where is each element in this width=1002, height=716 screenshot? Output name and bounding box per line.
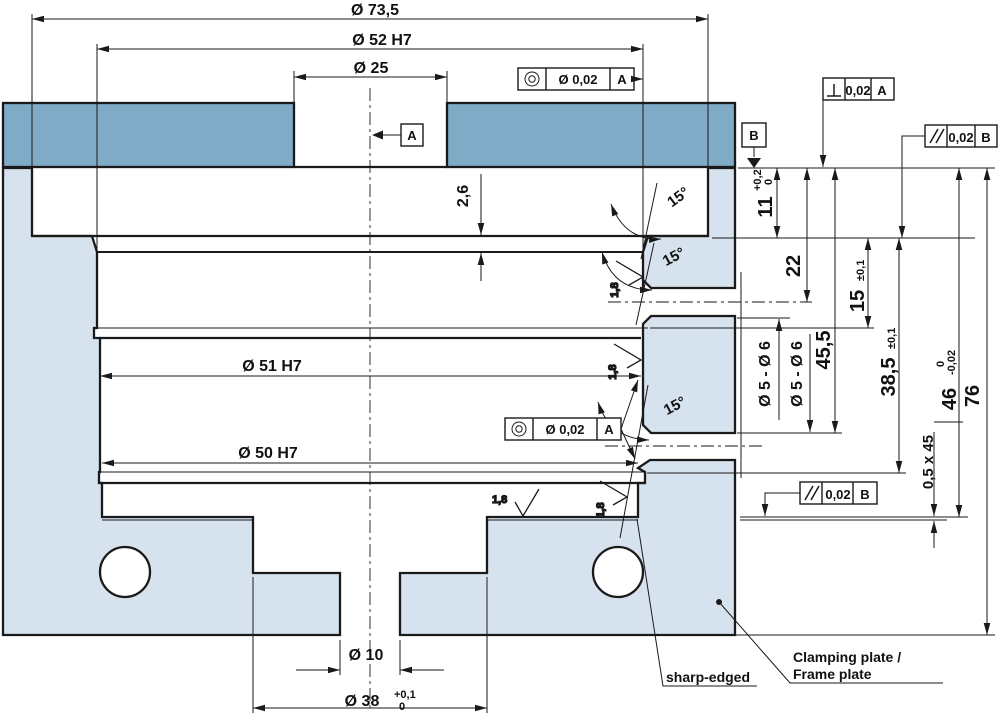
- dim-38-5: 38,5 ±0,1: [878, 328, 900, 397]
- fcf-conc-mid-tol: Ø 0,02: [545, 422, 584, 437]
- fcf-conc-mid-datum: A: [604, 422, 614, 437]
- datum-b-label: B: [749, 128, 758, 143]
- section-view: 15° 15° 15° 1,8 1,8 1,8 1,8 Ø 0,02 A 0,0…: [0, 0, 1002, 716]
- fcf-par-bottom-datum: B: [860, 487, 869, 502]
- fcf-conc-top-datum: A: [617, 72, 627, 87]
- roughness-1: 1,8: [609, 282, 621, 297]
- dim-52: Ø 52 H7: [352, 32, 412, 49]
- svg-text:46: 46: [939, 388, 961, 410]
- flange-hole-left: [100, 547, 150, 597]
- roughness-symbols: 1,8 1,8 1,8 1,8: [492, 261, 643, 518]
- side-hole-label-1: Ø 5 - Ø 6: [757, 341, 774, 407]
- svg-text:38,5: 38,5: [878, 358, 900, 397]
- svg-text:11: 11: [755, 196, 777, 217]
- svg-text:0: 0: [763, 179, 775, 185]
- svg-text:45,5: 45,5: [813, 331, 835, 370]
- svg-text:2,6: 2,6: [455, 185, 472, 207]
- datum-a-flag: A: [372, 124, 423, 146]
- svg-text:-0,02: -0,02: [946, 350, 958, 375]
- fcf-parallelism-top: 0,02 B: [902, 125, 997, 238]
- fcf-perpendicularity: 0,02 A: [823, 78, 894, 167]
- svg-text:15: 15: [847, 290, 869, 312]
- body-lower-right: [400, 460, 735, 635]
- fcf-concentricity-top: Ø 0,02 A: [518, 68, 643, 90]
- fcf-par-top-tol: 0,02: [948, 130, 973, 145]
- dim-45-5: 45,5: [813, 331, 835, 370]
- roughness-2: 1,8: [607, 364, 619, 379]
- datum-b-flag: B: [742, 123, 766, 168]
- dim-46: 46 0 -0,02: [935, 350, 961, 410]
- datum-a-arrow: [372, 131, 383, 140]
- roughness-4: 1,8: [595, 502, 607, 517]
- body-left-half: [3, 168, 340, 635]
- dim-38-tol-lo: 0: [399, 701, 405, 713]
- fcf-conc-top-tol: Ø 0,02: [558, 72, 597, 87]
- dim-chamfer: 0,5 x 45: [920, 435, 937, 489]
- fcf-parallelism-bottom: 0,02 B: [765, 482, 877, 516]
- dim-38: Ø 38: [345, 693, 380, 710]
- dim-2-6: 2,6: [455, 185, 472, 207]
- fcf-par-bottom-tol: 0,02: [825, 487, 850, 502]
- dim-76: 76: [962, 385, 984, 407]
- fcf-perp-tol: 0,02: [845, 83, 870, 98]
- datum-a-label: A: [407, 128, 417, 143]
- upper-plate-left: [3, 103, 294, 167]
- svg-text:±0,1: ±0,1: [886, 328, 898, 349]
- dim-38-tol-hi: +0,1: [394, 689, 416, 701]
- part-label-line1: Clamping plate /: [793, 649, 901, 665]
- upper-plate-right: [447, 103, 735, 167]
- svg-text:Ø 5 - Ø 6: Ø 5 - Ø 6: [789, 341, 806, 407]
- svg-text:±0,1: ±0,1: [855, 260, 867, 281]
- dim-73-5: Ø 73,5: [351, 2, 399, 19]
- roughness-3: 1,8: [492, 494, 507, 506]
- dim-51: Ø 51 H7: [242, 358, 302, 375]
- dim-11: 11 +0,2 0: [752, 169, 777, 217]
- flange-hole-right: [593, 547, 643, 597]
- fcf-concentricity-mid: Ø 0,02 A: [505, 380, 638, 459]
- technical-drawing-canvas: 15° 15° 15° 1,8 1,8 1,8 1,8 Ø 0,02 A 0,0…: [0, 0, 1002, 716]
- svg-text:76: 76: [962, 385, 984, 407]
- datum-b-triangle: [747, 158, 761, 168]
- part-label-line2: Frame plate: [793, 666, 872, 682]
- part-geometry: [3, 103, 735, 635]
- dim-10: Ø 10: [349, 647, 384, 664]
- svg-text:22: 22: [783, 255, 805, 277]
- side-hole-label-2: Ø 5 - Ø 6: [789, 341, 806, 407]
- dim-25: Ø 25: [354, 60, 389, 77]
- body-mid-right: [643, 316, 735, 433]
- dim-50: Ø 50 H7: [238, 445, 298, 462]
- fcf-perp-datum: A: [877, 83, 887, 98]
- dim-15: 15 ±0,1: [847, 260, 869, 312]
- fcf-par-top-datum: B: [981, 130, 990, 145]
- svg-text:0,5 x 45: 0,5 x 45: [920, 435, 937, 489]
- sharp-edged-label: sharp-edged: [666, 669, 750, 685]
- svg-text:Ø 5 - Ø 6: Ø 5 - Ø 6: [757, 341, 774, 407]
- dim-22: 22: [783, 255, 805, 277]
- angle-label-1: 15°: [664, 184, 692, 211]
